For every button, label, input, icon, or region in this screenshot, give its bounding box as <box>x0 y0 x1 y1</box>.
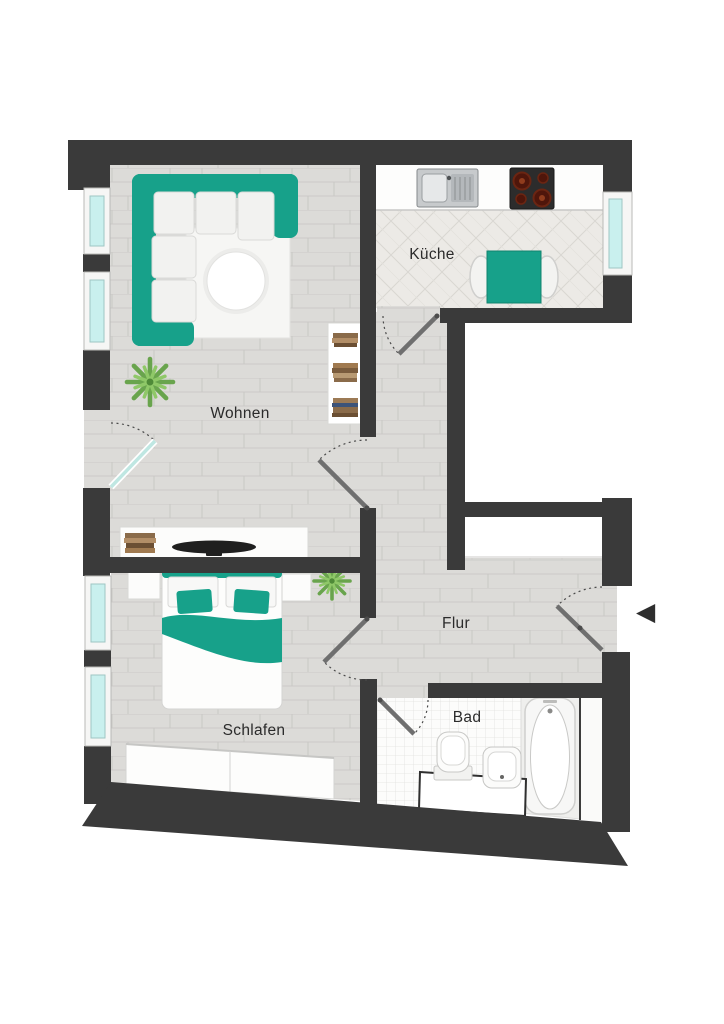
room-label-schlafen: Schlafen <box>223 722 286 740</box>
window-living-1 <box>84 188 110 254</box>
kitchen-counter <box>376 165 603 210</box>
balcony-door-threshold <box>84 410 111 490</box>
window-living-2 <box>84 272 110 350</box>
window-bedroom-1 <box>85 576 111 650</box>
sideboard <box>120 527 308 558</box>
wall-left-sep1 <box>83 254 110 272</box>
wall-right-low <box>602 652 630 832</box>
wall-hallway-mid <box>360 508 376 618</box>
cooktop <box>510 168 554 209</box>
accent-pillow-left <box>176 589 213 614</box>
room-label-kueche: Küche <box>409 246 454 264</box>
room-label-wohnen: Wohnen <box>210 405 269 423</box>
living-door-threshold <box>360 437 376 508</box>
hallway-niche-shadow <box>465 556 602 561</box>
floorplan-svg <box>0 0 724 1024</box>
wall-notch-left <box>447 308 465 570</box>
wall-living-bedroom <box>107 557 360 573</box>
wall-left-seg2 <box>83 488 110 576</box>
room-label-flur: Flur <box>442 615 470 633</box>
nightstand-right <box>281 574 311 601</box>
kitchen-sink <box>417 169 478 207</box>
entrance-arrow-icon: ◀ <box>636 600 655 625</box>
window-bedroom-2 <box>85 667 111 746</box>
wall-left-seg1 <box>83 350 110 410</box>
wall-left-sep2 <box>84 650 111 667</box>
bathtub <box>521 693 580 820</box>
wall-bathroom-top <box>428 683 602 698</box>
accent-pillow-right <box>233 589 270 614</box>
window-kitchen <box>603 192 632 275</box>
wall-right-mid <box>602 498 632 586</box>
plant-living <box>127 359 173 405</box>
wall-hallway-lower <box>360 679 377 804</box>
double-bed <box>162 566 282 709</box>
bathroom-door-threshold <box>377 683 428 698</box>
dining-table <box>487 251 541 303</box>
nightstand-left <box>128 572 160 599</box>
bathroom-sink <box>483 747 521 788</box>
wall-hallway-upper <box>360 160 376 437</box>
room-label-bad: Bad <box>453 709 481 727</box>
toilet <box>434 732 472 780</box>
coffee-table <box>207 252 265 310</box>
wall-corner-topleft <box>68 140 110 190</box>
bedroom-door-threshold <box>360 618 376 679</box>
wall-top <box>68 140 632 165</box>
floorplan-canvas: Wohnen Küche Flur Schlafen Bad ◀ <box>0 0 724 1024</box>
bookshelf <box>328 323 361 424</box>
hallway-niche <box>465 517 602 558</box>
